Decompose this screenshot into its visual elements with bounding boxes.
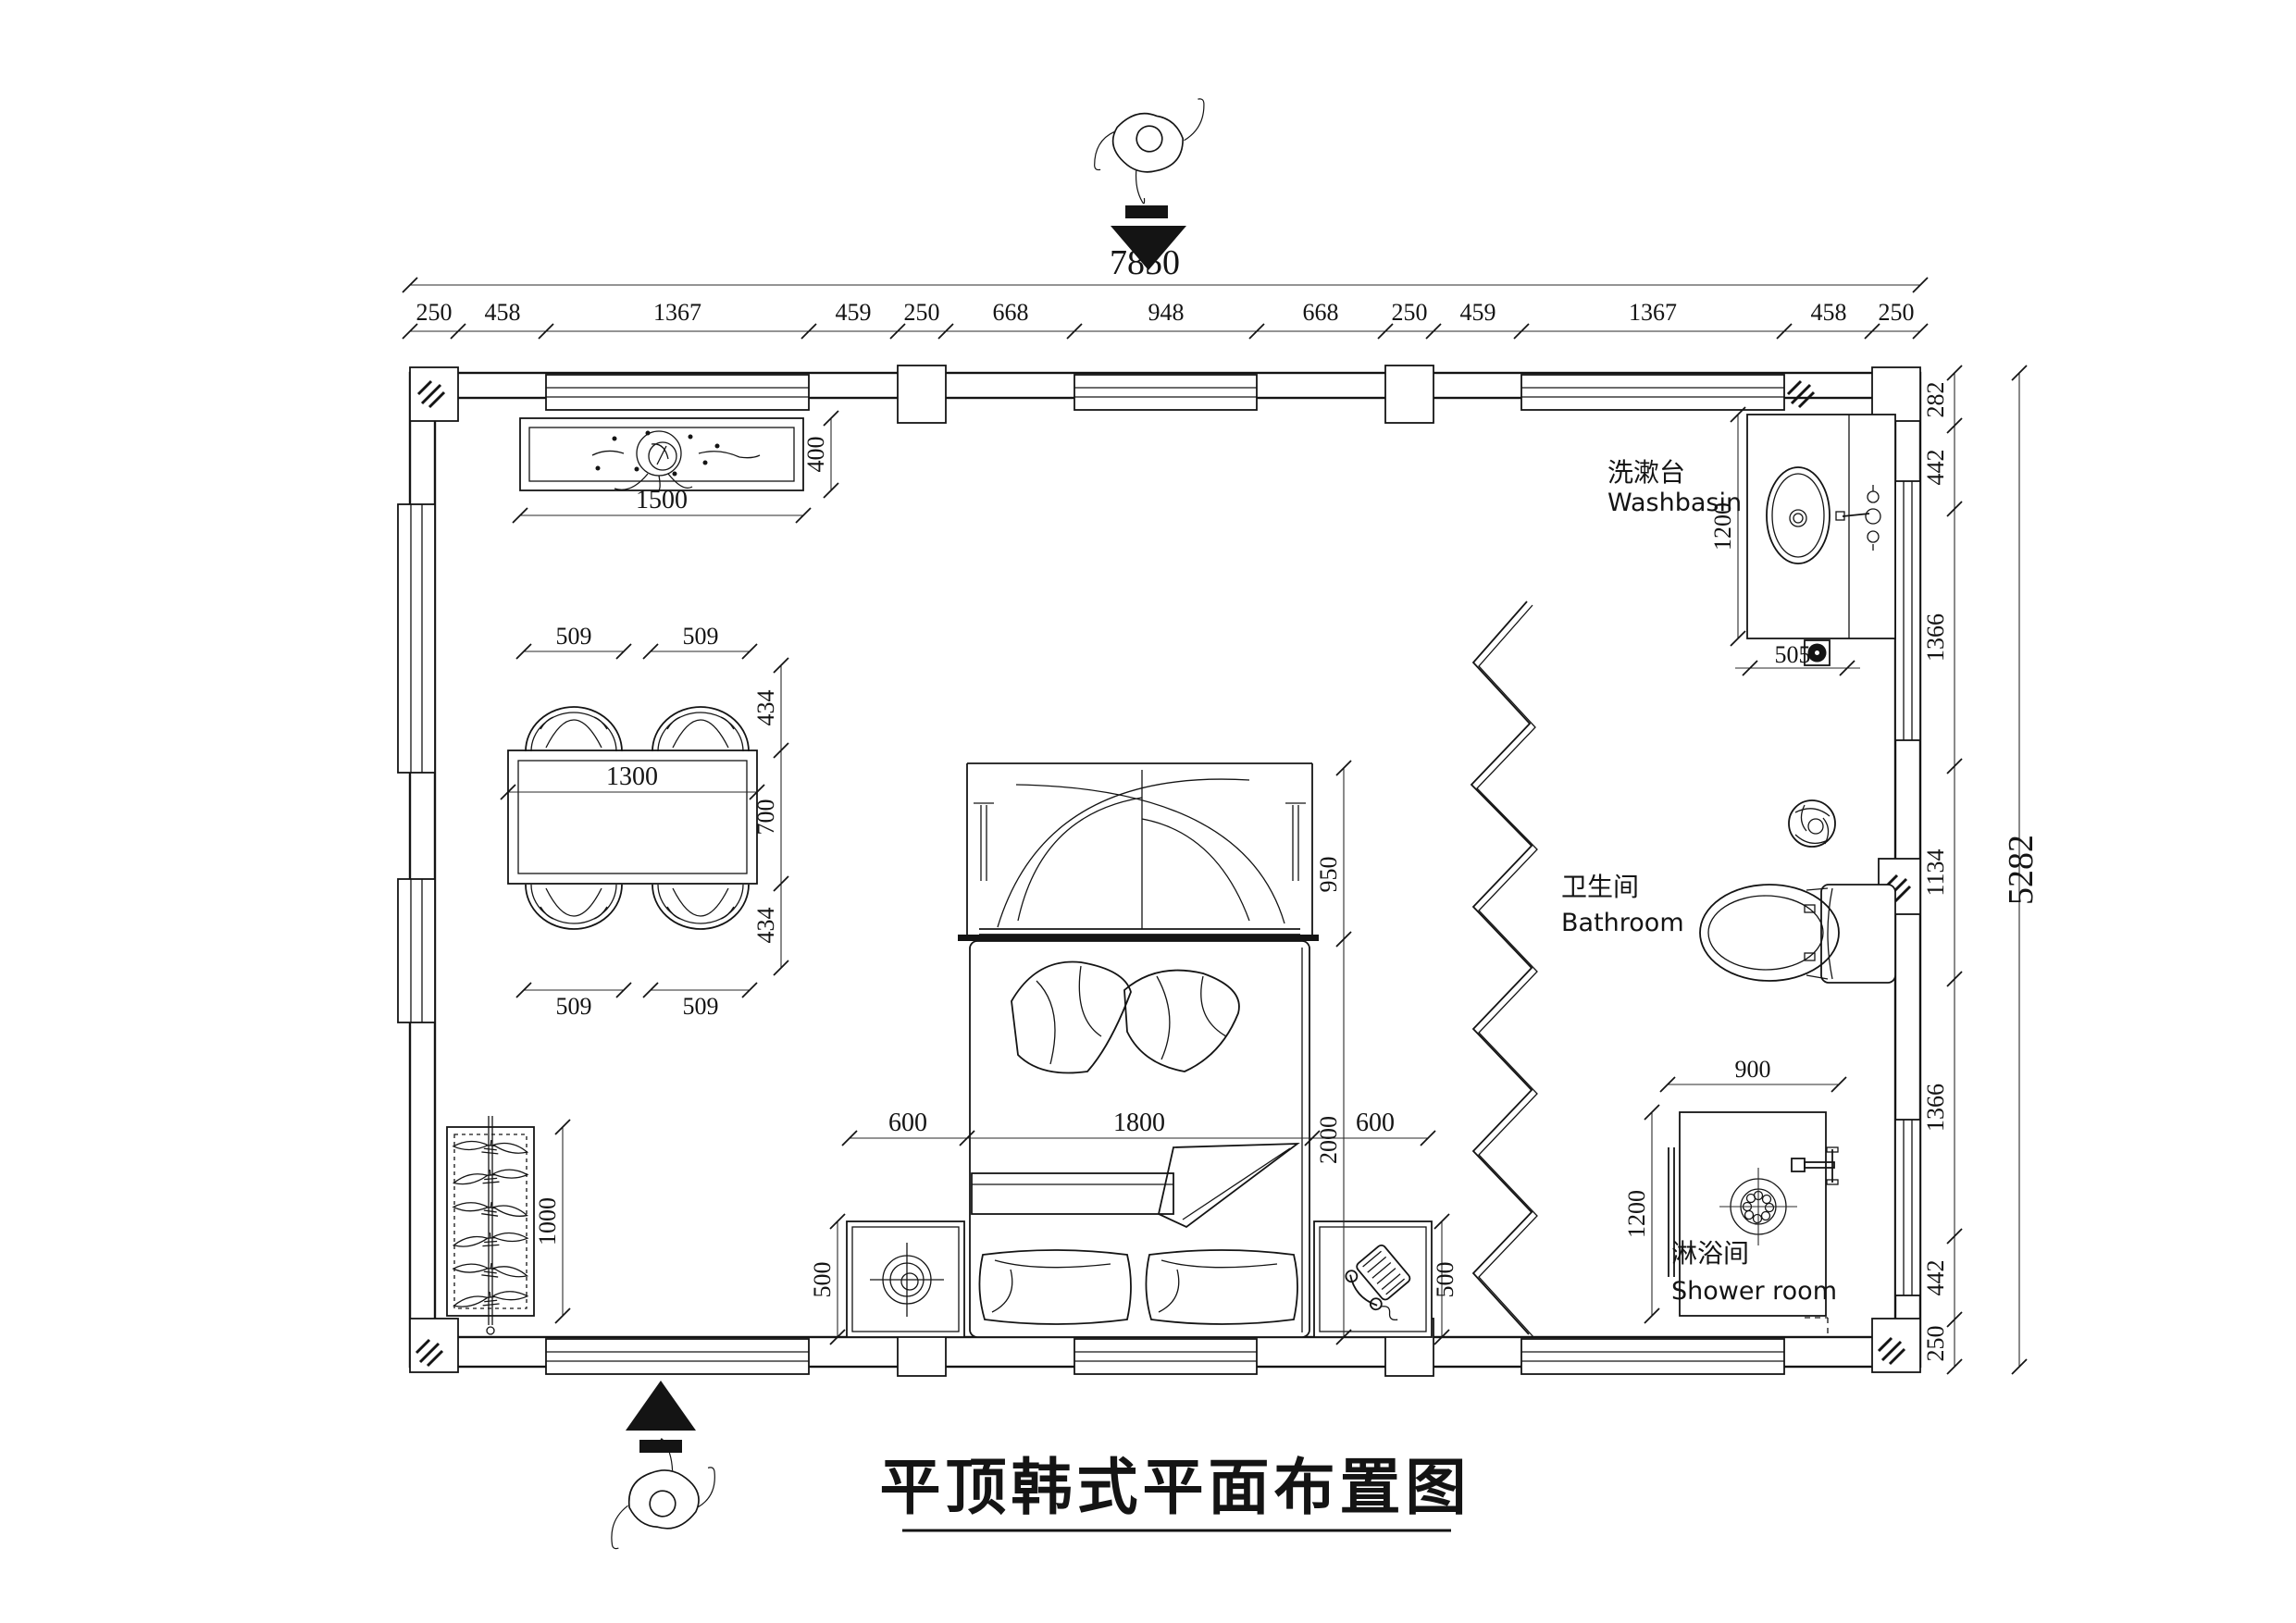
svg-text:250: 250: [416, 299, 453, 326]
svg-text:282: 282: [1922, 382, 1949, 418]
entry-arrow-up-icon: [626, 1381, 696, 1431]
person-top-icon: [1087, 78, 1207, 212]
clothes-rack: [447, 1116, 534, 1334]
svg-text:1800: 1800: [1113, 1109, 1165, 1137]
svg-text:458: 458: [1811, 299, 1847, 326]
bathroom-label-zh: 卫生间: [1561, 872, 1639, 902]
washbasin-label-en: Washbasin: [1607, 489, 1742, 517]
svg-text:509: 509: [683, 993, 719, 1020]
svg-text:509: 509: [556, 623, 592, 650]
folding-screen: [1471, 601, 1537, 1338]
bed-canopy: [967, 763, 1312, 936]
svg-text:1366: 1366: [1922, 613, 1949, 662]
svg-text:250: 250: [1879, 299, 1915, 326]
svg-text:250: 250: [904, 299, 940, 326]
svg-text:600: 600: [1356, 1109, 1395, 1137]
page-title: 平顶韩式平面布置图: [880, 1452, 1471, 1523]
svg-text:509: 509: [683, 623, 719, 650]
svg-text:250: 250: [1922, 1326, 1949, 1362]
svg-text:442: 442: [1922, 450, 1949, 486]
washbasin-label-zh: 洗漱台: [1607, 457, 1685, 488]
svg-text:442: 442: [1922, 1260, 1949, 1296]
entry-top: [1087, 78, 1207, 270]
svg-text:1367: 1367: [653, 299, 701, 326]
nightstand-left: [847, 1221, 964, 1337]
svg-text:1300: 1300: [606, 762, 658, 791]
svg-text:505: 505: [1775, 641, 1811, 668]
nightstand-right: [1314, 1221, 1432, 1337]
shower-label-zh: 淋浴间: [1671, 1238, 1749, 1269]
floor-plan-page: 7850 250 458 1367 459 250 668 948 668 25…: [0, 0, 2296, 1623]
svg-text:950: 950: [1315, 857, 1342, 893]
chair-icon: [526, 707, 622, 751]
svg-text:700: 700: [752, 799, 779, 836]
entry-arrow-bar: [1125, 205, 1168, 218]
svg-text:668: 668: [993, 299, 1029, 326]
drawing-title: 平顶韩式平面布置图: [880, 1452, 1471, 1530]
svg-text:400: 400: [802, 437, 829, 473]
entry-bottom: [610, 1381, 720, 1561]
svg-text:458: 458: [485, 299, 521, 326]
corner-hatch-icon: [1788, 381, 1814, 407]
svg-text:1366: 1366: [1922, 1084, 1949, 1132]
svg-text:668: 668: [1303, 299, 1339, 326]
svg-text:434: 434: [752, 908, 779, 944]
svg-text:900: 900: [1735, 1056, 1771, 1083]
svg-text:600: 600: [888, 1109, 927, 1137]
svg-text:1200: 1200: [1623, 1190, 1650, 1238]
svg-text:500: 500: [809, 1262, 836, 1298]
person-bottom-icon: [610, 1434, 720, 1561]
bathroom-label-en: Bathroom: [1561, 909, 1684, 937]
svg-text:434: 434: [752, 690, 779, 726]
bottom-wall-windows: [546, 1339, 1784, 1374]
toilet: [1700, 885, 1895, 983]
floor-plan-drawing: 7850 250 458 1367 459 250 668 948 668 25…: [0, 0, 2296, 1623]
chair-icon: [652, 707, 749, 751]
svg-text:459: 459: [1460, 299, 1496, 326]
svg-text:1367: 1367: [1629, 299, 1677, 326]
top-wall-windows: [546, 375, 1784, 410]
svg-text:500: 500: [1432, 1262, 1458, 1298]
wall-cabinet: [520, 418, 803, 491]
svg-text:1134: 1134: [1922, 849, 1949, 896]
chair-icon: [526, 885, 622, 929]
svg-text:509: 509: [556, 993, 592, 1020]
svg-text:1500: 1500: [636, 486, 688, 514]
shower-label-en: Shower room: [1671, 1277, 1837, 1306]
svg-text:2000: 2000: [1315, 1116, 1342, 1164]
svg-text:948: 948: [1148, 299, 1185, 326]
svg-text:1000: 1000: [534, 1197, 561, 1245]
dim-total-height: 5282: [2002, 835, 2041, 905]
washbasin-counter: [1747, 415, 1895, 665]
exhaust-fan-icon: [1789, 800, 1835, 847]
svg-text:459: 459: [836, 299, 872, 326]
svg-text:250: 250: [1392, 299, 1428, 326]
chair-icon: [652, 885, 749, 929]
